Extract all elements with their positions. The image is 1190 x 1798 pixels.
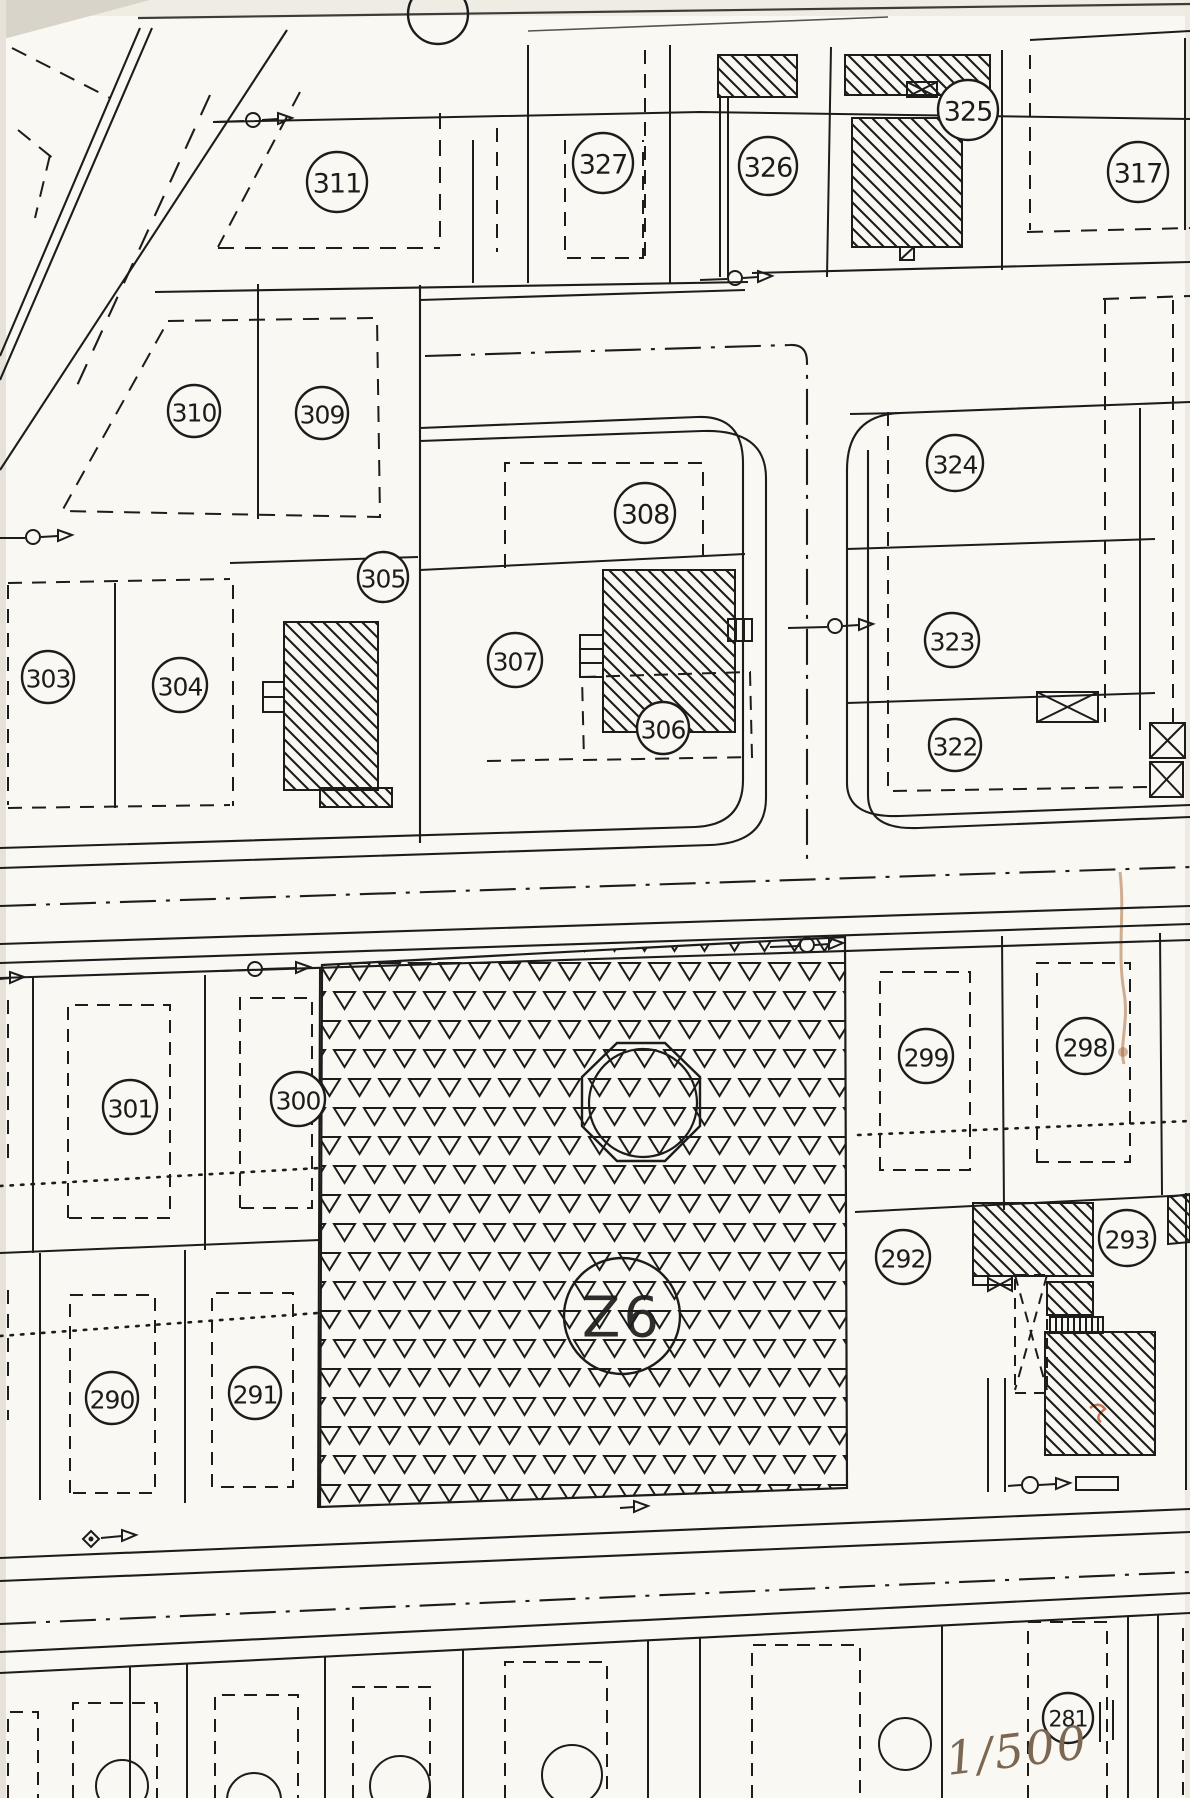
- parcel-marker-300: 300: [271, 1072, 325, 1126]
- building-ladder-strip: [1050, 1317, 1103, 1333]
- parcel-label: 298: [1063, 1034, 1108, 1063]
- parcel-label: 300: [276, 1087, 321, 1116]
- survey-marker: [788, 619, 873, 633]
- road-diagonal: [0, 28, 287, 470]
- north-boundary-line: [213, 112, 1190, 122]
- scanned-cadastral-plan: Z6: [0, 0, 1190, 1798]
- dotted-line: [0, 1168, 320, 1186]
- survey-marker: [222, 962, 310, 976]
- parcel-label: 322: [933, 733, 978, 762]
- building-hatched: [1045, 1332, 1155, 1455]
- parcel-label: 310: [172, 399, 217, 428]
- building-annex: [263, 682, 284, 712]
- zone-label: Z6: [582, 1286, 662, 1351]
- paper-edge-line-2: [528, 17, 888, 31]
- parcel-label: 325: [944, 97, 993, 128]
- paper-right-edge: [1185, 0, 1190, 1798]
- survey-marker-diamond: [83, 1530, 136, 1547]
- parcel-label: 311: [313, 169, 362, 200]
- building-hatched-partial: [1168, 1194, 1190, 1244]
- scan-stain-streak: [1120, 872, 1125, 1064]
- parcel-marker-305: 305: [358, 552, 408, 602]
- parcel-label: 307: [493, 648, 538, 677]
- parcel-label: 324: [933, 451, 978, 480]
- parcel-label: 299: [904, 1044, 949, 1073]
- scan-stain-blob: [1118, 1047, 1128, 1057]
- parcel-label: 306: [641, 716, 686, 745]
- parcel-label: 309: [300, 401, 345, 430]
- parcel-marker-322: 322: [929, 719, 981, 771]
- survey-marker: [1008, 1477, 1118, 1493]
- parcel-marker-325: 325: [938, 80, 998, 140]
- paper-artifacts: [0, 0, 1190, 1798]
- building-annex-hatched: [320, 788, 392, 807]
- building-hatched: [973, 1203, 1093, 1276]
- parcel-label: 304: [158, 673, 203, 702]
- road-bottom: [0, 1509, 1190, 1673]
- building-hatched: [284, 622, 378, 790]
- building-steps-left: [580, 635, 603, 677]
- parcel-marker-317: 317: [1108, 142, 1168, 202]
- parcel-marker-309: 309: [296, 387, 348, 439]
- parcel-marker-303: 303: [22, 651, 74, 703]
- parcel-label: 291: [233, 1381, 278, 1410]
- parcel-label: 303: [26, 665, 71, 694]
- plan-drawing: Z6: [0, 0, 1190, 1798]
- road-centerline-dashdot: [0, 1572, 1190, 1624]
- zone-triangle-pattern-area: [320, 937, 847, 1507]
- building-hatched: [718, 55, 797, 97]
- parcel-label: 290: [90, 1386, 135, 1415]
- parcel-marker-306: 306: [637, 702, 689, 754]
- parcel-label: 326: [744, 153, 793, 184]
- dotted-line: [858, 1121, 1190, 1135]
- paper-top-band: [0, 0, 1190, 16]
- parcel-marker-326: 326: [739, 137, 797, 195]
- parcel-marker-310: 310: [168, 385, 220, 437]
- parcel-marker-308: 308: [615, 483, 675, 543]
- building-hatched: [1047, 1282, 1093, 1315]
- parcel-label: 323: [930, 628, 975, 657]
- parcel-marker-324: 324: [927, 435, 983, 491]
- dotted-line: [0, 1313, 318, 1336]
- parcel-marker-293: 293: [1099, 1210, 1155, 1266]
- parcel-label: 305: [361, 565, 406, 594]
- parcel-marker-290: 290: [86, 1372, 138, 1424]
- road-centerline-dashdot: [0, 867, 1190, 906]
- paper-corner-shadow: [0, 0, 150, 40]
- zone-z6: Z6: [320, 937, 847, 1507]
- small-square-symbol: [900, 247, 914, 260]
- survey-marker: [620, 1501, 648, 1512]
- parcel-label: 301: [108, 1095, 153, 1124]
- parcel-label: 292: [881, 1245, 926, 1274]
- octagon-structure: [582, 1043, 700, 1161]
- parcel-marker-292: 292: [876, 1230, 930, 1284]
- parcel-marker-307: 307: [488, 633, 542, 687]
- paper-left-edge: [0, 0, 6, 1798]
- survey-marker: [0, 530, 72, 544]
- parcel-label: 293: [1105, 1226, 1150, 1255]
- parcel-label: 317: [1114, 159, 1163, 190]
- parcel-marker-301: 301: [103, 1080, 157, 1134]
- parcel-marker-299: 299: [899, 1029, 953, 1083]
- x-box-symbol: [1150, 762, 1183, 797]
- x-box-symbol: [1150, 723, 1185, 758]
- parcel-marker-304: 304: [153, 658, 207, 712]
- parcel-label: 327: [579, 150, 628, 181]
- building-hatched: [852, 118, 962, 247]
- parcel-marker-327: 327: [573, 133, 633, 193]
- parcel-label: 308: [621, 500, 670, 531]
- parcel-marker-311: 311: [307, 152, 367, 212]
- parcel-marker-323: 323: [925, 613, 979, 667]
- parcel-marker-298: 298: [1057, 1018, 1113, 1074]
- road-vertical: [0, 285, 1190, 868]
- scale-note: 1/500: [943, 1715, 1091, 1786]
- parcel-marker-291: 291: [229, 1367, 281, 1419]
